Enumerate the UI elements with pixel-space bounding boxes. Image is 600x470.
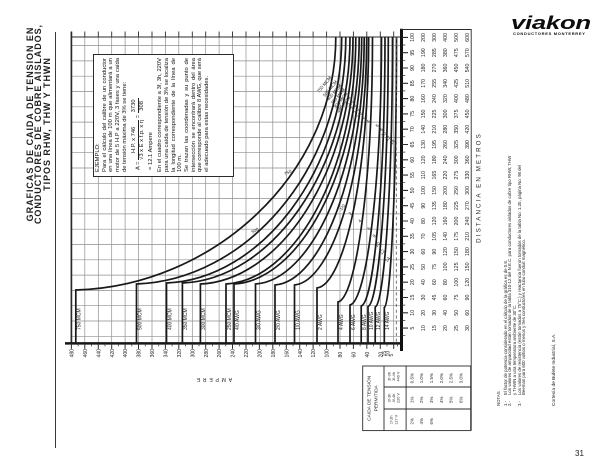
- svg-text:500: 500: [454, 33, 460, 42]
- svg-text:250: 250: [454, 186, 460, 195]
- svg-text:150: 150: [454, 247, 460, 256]
- svg-text:300: 300: [465, 186, 471, 195]
- svg-text:500 MCM: 500 MCM: [137, 308, 143, 330]
- svg-text:300: 300: [454, 155, 460, 164]
- svg-text:160: 160: [284, 349, 290, 358]
- svg-text:250 MCM: 250 MCM: [227, 308, 233, 330]
- svg-text:225: 225: [432, 109, 438, 118]
- svg-text:240: 240: [231, 349, 237, 358]
- svg-text:6%: 6%: [459, 397, 464, 403]
- svg-text:35: 35: [410, 233, 416, 239]
- svg-text:480: 480: [465, 94, 471, 103]
- svg-text:1/0 AWG: 1/0 AWG: [295, 310, 301, 330]
- svg-text:300 MCM: 300 MCM: [201, 308, 207, 330]
- svg-text:60: 60: [443, 295, 449, 301]
- svg-text:8 AWG: 8 AWG: [362, 314, 368, 330]
- svg-text:320: 320: [443, 94, 449, 103]
- svg-text:3f-4h: 3f-4h: [392, 394, 396, 403]
- svg-text:PERMITIDA: PERMITIDA: [374, 384, 380, 411]
- svg-text:DISTANCIA EN METROS: DISTANCIA EN METROS: [476, 132, 483, 243]
- svg-text:220: 220: [244, 349, 250, 358]
- svg-text:400: 400: [123, 349, 129, 358]
- svg-text:480: 480: [70, 349, 76, 358]
- svg-text:320: 320: [177, 349, 183, 358]
- svg-text:360: 360: [465, 155, 471, 164]
- svg-text:120: 120: [443, 247, 449, 256]
- svg-text:300: 300: [432, 33, 438, 42]
- svg-text:380: 380: [443, 48, 449, 57]
- svg-text:280: 280: [204, 349, 210, 358]
- svg-text:180: 180: [465, 247, 471, 256]
- svg-text:60: 60: [432, 279, 438, 285]
- svg-text:5: 5: [410, 327, 416, 330]
- svg-text:6 AWG: 6 AWG: [351, 314, 357, 330]
- svg-text:175: 175: [454, 232, 460, 241]
- svg-text:160: 160: [443, 217, 449, 226]
- svg-text:400: 400: [443, 33, 449, 42]
- svg-text:70: 70: [421, 233, 427, 239]
- svg-text:4%: 4%: [419, 418, 424, 424]
- svg-text:90: 90: [432, 249, 438, 255]
- svg-text:12 AWG: 12 AWG: [376, 311, 382, 330]
- svg-text:65: 65: [410, 142, 416, 148]
- svg-text:90: 90: [421, 203, 427, 209]
- svg-text:10: 10: [421, 325, 427, 331]
- svg-text:2%: 2%: [419, 397, 424, 403]
- svg-text:180: 180: [421, 64, 427, 73]
- svg-text:140: 140: [298, 349, 304, 358]
- svg-text:5%: 5%: [449, 397, 454, 403]
- svg-text:1%: 1%: [409, 397, 414, 403]
- svg-text:45: 45: [432, 295, 438, 301]
- svg-text:380: 380: [137, 349, 143, 358]
- svg-text:55: 55: [410, 172, 416, 178]
- svg-text:210: 210: [465, 232, 471, 241]
- svg-text:30: 30: [432, 310, 438, 316]
- svg-text:60: 60: [421, 249, 427, 255]
- svg-text:40: 40: [410, 218, 416, 224]
- svg-text:1f-2h: 1f-2h: [390, 415, 394, 424]
- svg-text:360: 360: [443, 64, 449, 73]
- svg-text:3/0 AWG: 3/0 AWG: [256, 310, 262, 330]
- svg-text:10: 10: [410, 310, 416, 316]
- svg-text:375: 375: [454, 109, 460, 118]
- svg-text:70: 70: [410, 126, 416, 132]
- svg-text:6%: 6%: [429, 418, 434, 424]
- svg-text:30: 30: [465, 325, 471, 331]
- svg-text:105: 105: [432, 232, 438, 241]
- svg-text:450: 450: [454, 64, 460, 73]
- svg-text:200: 200: [258, 349, 264, 358]
- svg-text:170: 170: [421, 79, 427, 88]
- svg-text:570: 570: [465, 48, 471, 57]
- svg-text:2%: 2%: [409, 418, 414, 424]
- svg-text:1.5%: 1.5%: [429, 373, 434, 383]
- svg-text:15: 15: [432, 325, 438, 331]
- svg-text:3%: 3%: [429, 397, 434, 403]
- svg-text:150: 150: [465, 262, 471, 271]
- svg-text:80: 80: [421, 218, 427, 224]
- svg-text:5: 5: [389, 354, 395, 357]
- svg-text:450: 450: [465, 109, 471, 118]
- svg-text:225: 225: [454, 201, 460, 210]
- svg-text:195: 195: [432, 140, 438, 149]
- svg-text:75: 75: [432, 264, 438, 270]
- svg-text:60: 60: [465, 310, 471, 316]
- svg-text:80: 80: [410, 96, 416, 102]
- svg-text:50: 50: [421, 264, 427, 270]
- svg-text:750 MCM: 750 MCM: [77, 308, 83, 330]
- svg-text:300: 300: [190, 349, 196, 358]
- svg-text:120: 120: [465, 278, 471, 287]
- svg-text:140: 140: [443, 232, 449, 241]
- svg-text:0.5%: 0.5%: [409, 373, 414, 383]
- svg-text:90: 90: [465, 295, 471, 301]
- svg-text:240: 240: [443, 155, 449, 164]
- svg-text:90: 90: [410, 65, 416, 71]
- svg-text:160: 160: [421, 94, 427, 103]
- svg-text:20: 20: [443, 325, 449, 331]
- svg-text:127 V: 127 V: [394, 414, 398, 424]
- svg-text:2.5%: 2.5%: [449, 373, 454, 383]
- svg-text:180: 180: [443, 201, 449, 210]
- svg-text:120: 120: [432, 217, 438, 226]
- svg-text:80: 80: [443, 279, 449, 285]
- svg-text:190: 190: [421, 48, 427, 57]
- svg-text:3f-3h: 3f-3h: [387, 394, 391, 403]
- svg-text:60: 60: [352, 352, 358, 358]
- svg-text:100: 100: [421, 186, 427, 195]
- svg-text:240: 240: [465, 217, 471, 226]
- svg-text:340: 340: [164, 349, 170, 358]
- svg-text:4 AWG: 4 AWG: [339, 314, 345, 330]
- svg-text:30: 30: [421, 295, 427, 301]
- svg-text:25: 25: [454, 325, 460, 331]
- svg-text:45: 45: [410, 203, 416, 209]
- svg-text:80: 80: [338, 352, 344, 358]
- svg-text:40: 40: [421, 279, 427, 285]
- svg-text:20: 20: [421, 310, 427, 316]
- svg-text:510: 510: [465, 79, 471, 88]
- svg-text:3f-3h: 3f-3h: [387, 372, 391, 381]
- svg-text:200: 200: [421, 33, 427, 42]
- svg-text:285: 285: [432, 48, 438, 57]
- svg-text:325: 325: [454, 140, 460, 149]
- svg-text:330: 330: [465, 171, 471, 180]
- svg-text:255: 255: [432, 79, 438, 88]
- svg-text:220: 220: [443, 171, 449, 180]
- svg-text:25: 25: [410, 264, 416, 270]
- svg-text:150: 150: [421, 109, 427, 118]
- svg-text:200: 200: [443, 186, 449, 195]
- svg-text:20: 20: [410, 279, 416, 285]
- svg-text:40: 40: [443, 310, 449, 316]
- svg-text:110: 110: [421, 171, 427, 179]
- svg-text:14 AWG: 14 AWG: [385, 311, 391, 330]
- svg-text:400: 400: [454, 94, 460, 103]
- svg-text:340: 340: [443, 79, 449, 88]
- svg-text:15: 15: [410, 295, 416, 301]
- svg-text:180: 180: [271, 349, 277, 358]
- svg-text:2 AWG: 2 AWG: [318, 314, 324, 330]
- svg-text:75: 75: [454, 295, 460, 301]
- svg-text:135: 135: [432, 201, 438, 210]
- svg-text:165: 165: [432, 171, 438, 180]
- svg-text:180: 180: [432, 155, 438, 164]
- svg-text:3.0%: 3.0%: [459, 373, 464, 383]
- svg-text:540: 540: [465, 64, 471, 73]
- svg-text:2.0%: 2.0%: [439, 373, 444, 383]
- svg-text:40: 40: [365, 352, 371, 358]
- svg-text:350 MCM: 350 MCM: [183, 308, 189, 330]
- svg-text:100: 100: [454, 278, 460, 287]
- svg-text:1.0%: 1.0%: [419, 373, 424, 383]
- svg-text:60: 60: [410, 157, 416, 163]
- svg-text:10 AWG: 10 AWG: [369, 311, 375, 330]
- svg-text:260: 260: [443, 140, 449, 149]
- svg-text:100: 100: [410, 33, 416, 42]
- svg-text:50: 50: [454, 310, 460, 316]
- svg-text:120: 120: [311, 349, 317, 358]
- svg-text:200: 200: [454, 217, 460, 226]
- svg-text:270: 270: [432, 64, 438, 73]
- svg-text:140: 140: [421, 125, 427, 134]
- svg-text:460: 460: [83, 349, 89, 358]
- svg-text:AMPERE: AMPERE: [194, 376, 232, 382]
- svg-text:95: 95: [410, 50, 416, 56]
- svg-text:2/0 AWG: 2/0 AWG: [276, 310, 282, 330]
- svg-text:100: 100: [443, 262, 449, 271]
- svg-text:350: 350: [454, 125, 460, 134]
- svg-text:300: 300: [443, 109, 449, 118]
- svg-text:440 V: 440 V: [397, 371, 401, 381]
- svg-text:50: 50: [410, 187, 416, 193]
- svg-text:475: 475: [454, 48, 460, 57]
- svg-text:30: 30: [410, 249, 416, 255]
- svg-text:260: 260: [217, 349, 223, 358]
- svg-text:75: 75: [410, 111, 416, 117]
- svg-text:270: 270: [465, 201, 471, 210]
- svg-text:3f-4h: 3f-4h: [392, 372, 396, 381]
- svg-text:85: 85: [410, 80, 416, 86]
- svg-text:360: 360: [150, 349, 156, 358]
- svg-text:240: 240: [432, 94, 438, 103]
- svg-text:210: 210: [432, 125, 438, 134]
- svg-text:440: 440: [96, 349, 102, 358]
- svg-text:280: 280: [443, 125, 449, 134]
- svg-text:390: 390: [465, 140, 471, 149]
- svg-text:420: 420: [110, 349, 116, 358]
- svg-text:CAIDA DE TENSIÓN: CAIDA DE TENSIÓN: [366, 375, 373, 420]
- svg-text:400 MCM: 400 MCM: [167, 308, 173, 330]
- svg-text:425: 425: [454, 79, 460, 88]
- svg-text:130: 130: [421, 140, 427, 149]
- svg-text:4%: 4%: [439, 397, 444, 403]
- svg-text:275: 275: [454, 171, 460, 180]
- svg-text:4/0 AWG: 4/0 AWG: [235, 310, 241, 330]
- svg-text:125: 125: [454, 262, 460, 271]
- svg-text:420: 420: [465, 125, 471, 134]
- svg-text:100: 100: [325, 349, 331, 358]
- svg-text:120: 120: [421, 155, 427, 164]
- svg-text:600: 600: [465, 33, 471, 42]
- svg-text:150: 150: [432, 186, 438, 195]
- svg-text:220 V: 220 V: [397, 393, 401, 403]
